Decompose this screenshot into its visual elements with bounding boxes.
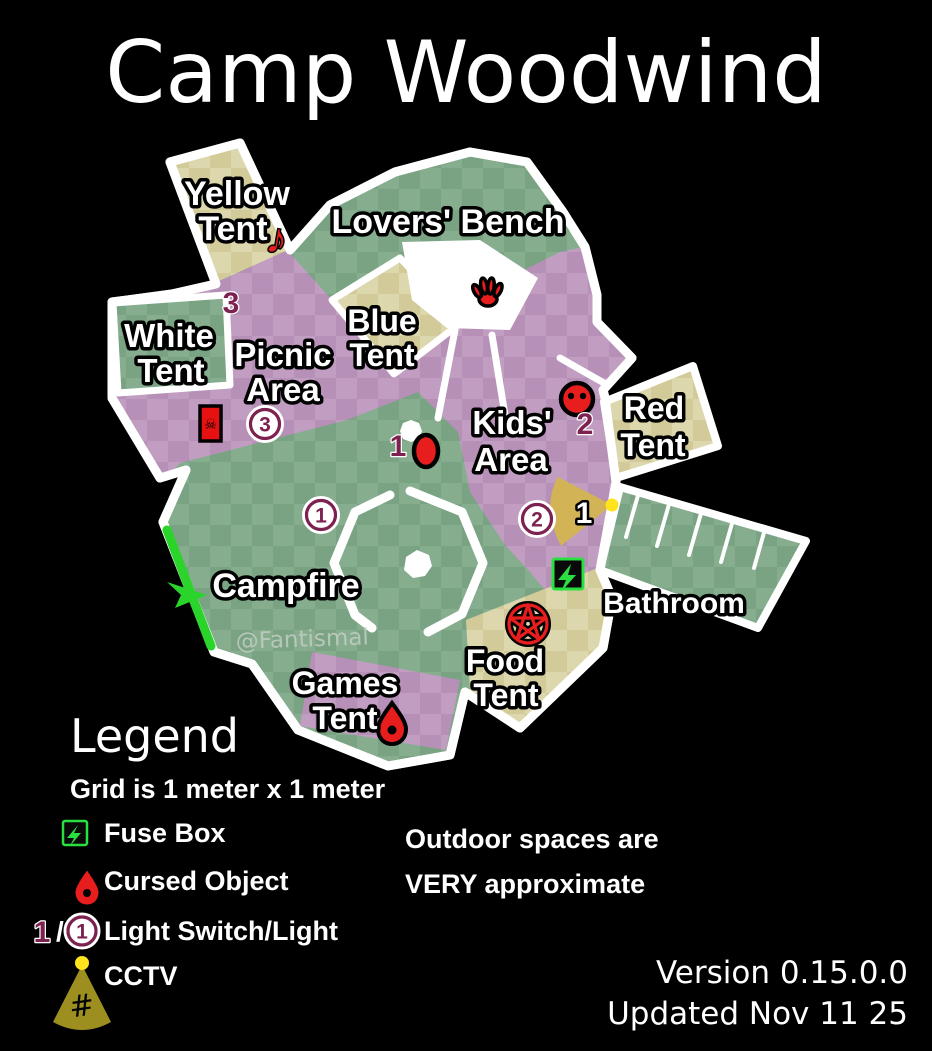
legend-cctv-icon: # (53, 956, 111, 1030)
legend-fuse-box-label: Fuse Box (104, 818, 226, 848)
updated-text: Updated Nov 11 25 (607, 996, 908, 1032)
label-campfire: Campfire (212, 567, 359, 605)
label-kids-area: Kids' (472, 404, 551, 441)
label-blue-tent: Blue (347, 303, 416, 339)
light-switch-2: 2 (577, 408, 594, 441)
svg-text:#: # (67, 987, 97, 1025)
label-red-tent-2: Tent (620, 427, 686, 463)
light-2: 2 (520, 502, 555, 537)
label-picnic-area: Picnic (234, 336, 331, 373)
svg-text:3: 3 (259, 414, 271, 437)
legend-heading: Legend (70, 709, 239, 763)
legend-light-switch-icon: 1 / 1 (34, 914, 99, 949)
legend-grid-note: Grid is 1 meter x 1 meter (70, 774, 386, 804)
label-games-tent: Games (292, 665, 399, 701)
version-text: Version 0.15.0.0 (656, 955, 908, 991)
legend-light-switch-label: Light Switch/Light (104, 916, 338, 946)
label-food-tent-2: Tent (473, 677, 539, 713)
camp-woodwind-map-page: Camp Woodwind (0, 0, 932, 1051)
legend-cursed-object-icon (74, 868, 100, 906)
legend-note-line2: VERY approximate (405, 869, 645, 899)
light-switch-3: 3 (223, 287, 240, 320)
cctv-number: 1 (576, 497, 593, 530)
fuse-box-icon (553, 559, 583, 592)
label-yellow-tent: Yellow (184, 175, 290, 213)
legend-fuse-box-icon (63, 821, 87, 846)
label-white-tent-2: Tent (137, 352, 204, 389)
label-kids-area-2: Area (474, 441, 548, 478)
legend: Legend Grid is 1 meter x 1 meter Fuse Bo… (34, 709, 659, 1030)
label-white-tent: White (124, 317, 214, 354)
tarot-cards-icon: ☠ (200, 406, 221, 441)
svg-text:2: 2 (531, 509, 543, 532)
footer: Version 0.15.0.0 Updated Nov 11 25 (607, 955, 908, 1032)
page-title: Camp Woodwind (105, 23, 827, 123)
camp-map: 1 ♪ ☠ (112, 143, 806, 766)
label-food-tent: Food (466, 643, 544, 679)
svg-text:/: / (56, 916, 64, 947)
svg-text:1: 1 (34, 916, 51, 949)
label-red-tent: Red (624, 390, 684, 426)
label-yellow-tent-2: Tent (198, 210, 267, 248)
label-games-tent-2: Tent (312, 700, 378, 736)
light-1: 1 (304, 498, 339, 533)
legend-cursed-object-label: Cursed Object (104, 866, 289, 896)
watermark: @Fantismal (235, 624, 369, 655)
svg-text:1: 1 (315, 505, 327, 528)
svg-text:☠: ☠ (204, 417, 217, 433)
legend-note-line1: Outdoor spaces are (405, 824, 659, 854)
legend-cctv-label: CCTV (104, 961, 178, 991)
haunted-mirror-icon (414, 435, 438, 467)
light-3: 3 (248, 407, 283, 442)
label-bathroom: Bathroom (603, 587, 745, 620)
light-switch-1: 1 (390, 430, 407, 463)
svg-text:1: 1 (76, 921, 88, 944)
label-lovers-bench: Lovers' Bench (332, 203, 565, 241)
label-blue-tent-2: Tent (349, 337, 415, 373)
label-picnic-area-2: Area (246, 371, 320, 408)
